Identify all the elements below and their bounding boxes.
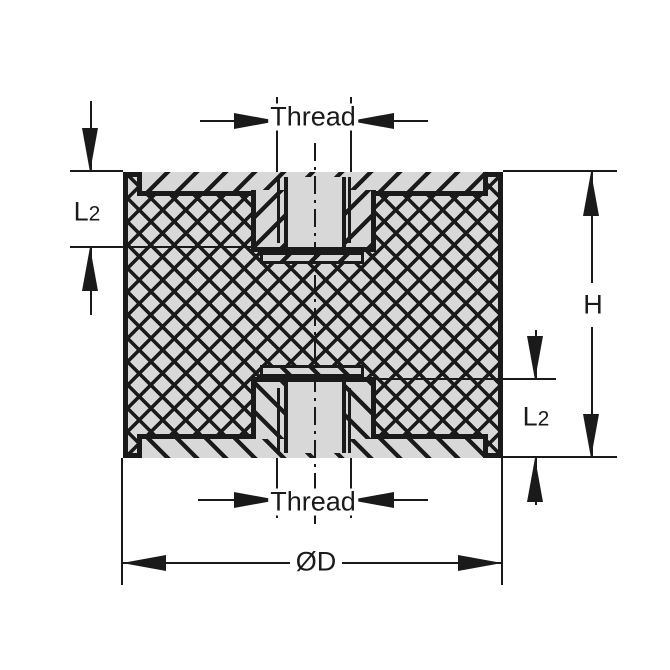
ext-line-top-surface-left — [70, 170, 123, 172]
h-label: H — [583, 292, 603, 319]
ext-line-bottom-surface-right — [503, 456, 617, 458]
thread-top-label: Thread — [268, 104, 358, 131]
h-arrowhead-down — [583, 414, 599, 458]
l2-left-arrowhead-up — [82, 247, 98, 291]
ext-line-l2-right — [364, 378, 556, 380]
l2-left-arrowhead-down — [82, 128, 98, 172]
top-thread-major-line-right — [348, 177, 351, 243]
d-ext-line-right — [501, 458, 503, 585]
top-insert-bottom-disc — [260, 252, 364, 264]
thread-bottom-label: Thread — [268, 489, 358, 516]
ext-line-l2-left — [70, 246, 251, 248]
ext-line-top-surface-right — [503, 170, 617, 172]
bottom-thread-major-line-right — [348, 388, 351, 453]
l2-left-label: L2 — [74, 199, 101, 226]
l2-right-label: L2 — [523, 404, 550, 431]
l2-left-label-main: L — [74, 197, 89, 227]
technical-drawing-canvas: L2 Thread H L2 Thread ØD — [0, 0, 670, 670]
bottom-insert-top-disc — [260, 365, 364, 377]
d-label: ØD — [293, 549, 340, 576]
l2-right-label-sub: 2 — [538, 408, 550, 431]
l2-left-label-sub: 2 — [89, 203, 101, 226]
l2-right-arrowhead-down — [527, 336, 543, 380]
bottom-thread-major-line-left — [277, 388, 280, 453]
h-arrowhead-up — [583, 172, 599, 216]
d-arrowhead-right — [458, 555, 502, 571]
d-arrowhead-left — [122, 555, 166, 571]
top-thread-major-line-left — [277, 177, 280, 243]
l2-right-arrowhead-up — [527, 458, 543, 502]
l2-right-label-main: L — [523, 402, 538, 432]
d-ext-line-left — [121, 458, 123, 585]
vertical-centerline — [314, 143, 316, 528]
